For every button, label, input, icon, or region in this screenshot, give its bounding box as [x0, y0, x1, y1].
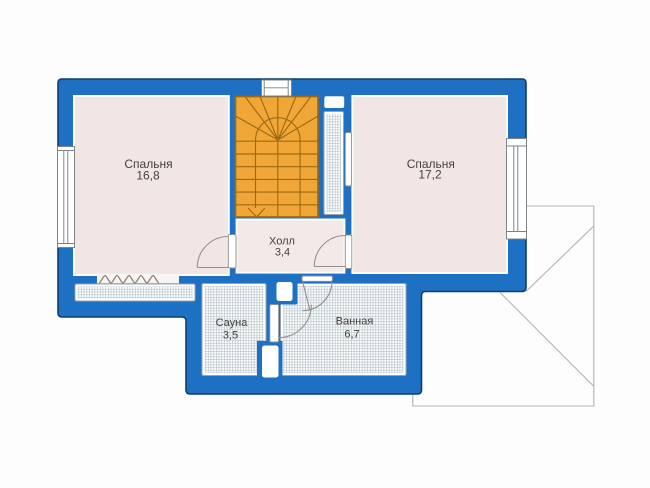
- svg-text:17,2: 17,2: [418, 168, 442, 182]
- svg-text:Сауна: Сауна: [216, 317, 249, 329]
- svg-text:3,5: 3,5: [223, 329, 238, 341]
- svg-text:6,7: 6,7: [344, 328, 359, 340]
- svg-text:16,8: 16,8: [136, 169, 160, 183]
- svg-text:3,4: 3,4: [275, 246, 290, 258]
- svg-text:Ванная: Ванная: [336, 315, 374, 327]
